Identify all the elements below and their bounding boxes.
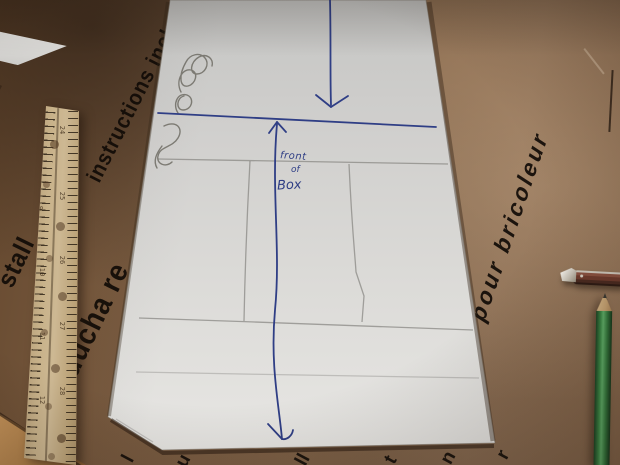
ruler-number: 9	[36, 206, 44, 210]
ruler-number: 11	[38, 332, 46, 340]
ruler-number: 12	[38, 396, 46, 404]
handwriting-front: front	[280, 150, 307, 163]
green-pencil	[591, 293, 616, 465]
pencil-shaft	[594, 311, 613, 465]
ruler-wear-spots	[22, 104, 27, 109]
ruler-wood-face: 8 9 10 11 12 24 25 26 27 28	[22, 104, 84, 465]
handwriting-of: of	[291, 165, 300, 175]
workbench-photo: instructions inclu stall a ducha re llat…	[0, 0, 620, 465]
ruler-number: 25	[58, 192, 66, 200]
ruler-number: 26	[58, 256, 66, 264]
knife-handle	[572, 270, 620, 287]
ruler-number: 8	[36, 142, 44, 146]
handwriting-box: Box	[277, 177, 302, 193]
knife-bolster	[560, 267, 577, 282]
ruler-tick-marks-right	[66, 104, 79, 465]
ruler-number: 28	[58, 387, 66, 395]
ruler-number: 10	[38, 268, 46, 276]
ruler-number: 24	[58, 126, 66, 134]
pocket-knife	[559, 264, 620, 293]
ruler-number: 27	[58, 322, 66, 330]
wooden-yardstick: 8 9 10 11 12 24 25 26 27 28	[22, 104, 84, 465]
